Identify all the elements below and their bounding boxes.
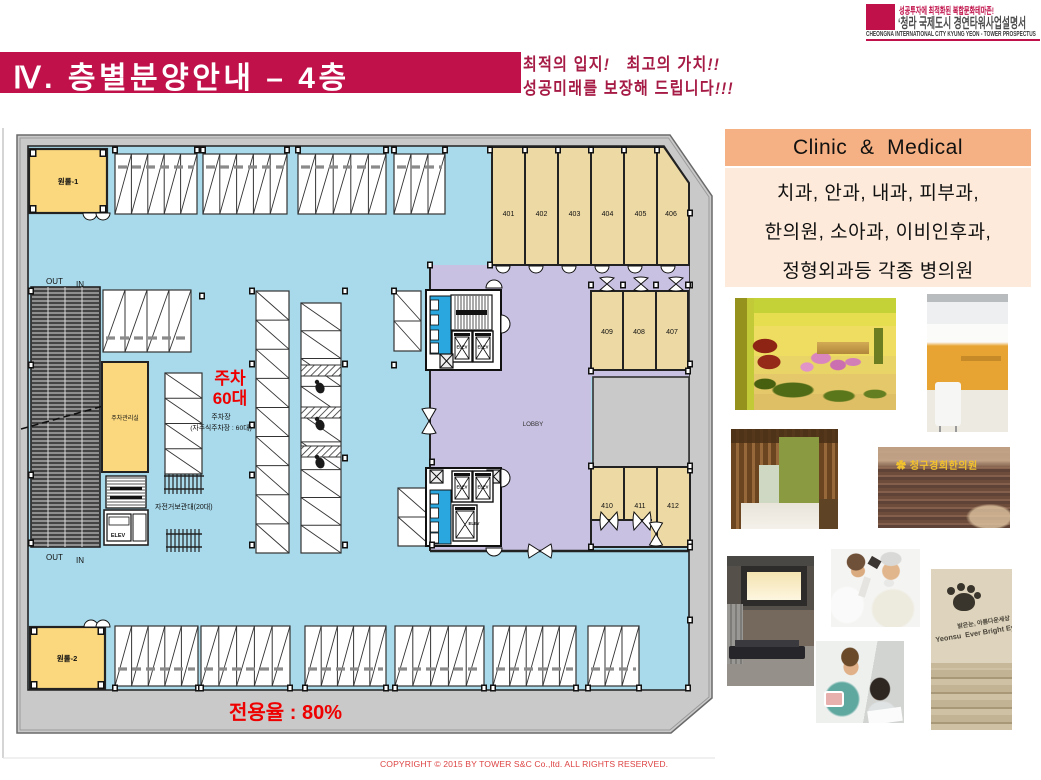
- svg-text:IN: IN: [76, 556, 84, 565]
- svg-text:ELEV: ELEV: [457, 485, 468, 490]
- svg-text:자전거보관대(20대): 자전거보관대(20대): [155, 502, 213, 511]
- svg-text:OUT: OUT: [46, 553, 63, 562]
- svg-text:401: 401: [503, 211, 515, 218]
- svg-text:60대: 60대: [213, 389, 248, 408]
- svg-text:404: 404: [602, 211, 614, 218]
- svg-text:408: 408: [633, 329, 645, 336]
- svg-text:주차: 주차: [214, 369, 246, 388]
- svg-text:405: 405: [635, 211, 647, 218]
- svg-text:410: 410: [601, 503, 613, 510]
- svg-text:원룰-2: 원룰-2: [57, 653, 77, 663]
- svg-text:409: 409: [601, 329, 613, 336]
- svg-text:LOBBY: LOBBY: [523, 421, 544, 428]
- svg-text:406: 406: [665, 211, 677, 218]
- svg-text:412: 412: [667, 503, 679, 510]
- svg-text:ELEV: ELEV: [457, 345, 468, 350]
- svg-text:주차관리실: 주차관리실: [111, 414, 139, 422]
- svg-text:OUT: OUT: [46, 277, 63, 286]
- svg-text:ELEV: ELEV: [469, 521, 480, 526]
- svg-text:407: 407: [666, 329, 678, 336]
- svg-text:402: 402: [536, 211, 548, 218]
- svg-text:ELEV: ELEV: [111, 533, 126, 539]
- svg-text:IN: IN: [76, 280, 84, 289]
- svg-text:411: 411: [634, 503, 645, 510]
- svg-text:주차장: 주차장: [211, 412, 231, 421]
- svg-text:(자주식주차장 : 60대): (자주식주차장 : 60대): [190, 423, 252, 432]
- svg-text:403: 403: [569, 211, 581, 218]
- svg-text:원룰-1: 원룰-1: [58, 176, 78, 186]
- svg-text:ELEV: ELEV: [478, 345, 489, 350]
- svg-text:ELEV: ELEV: [478, 485, 489, 490]
